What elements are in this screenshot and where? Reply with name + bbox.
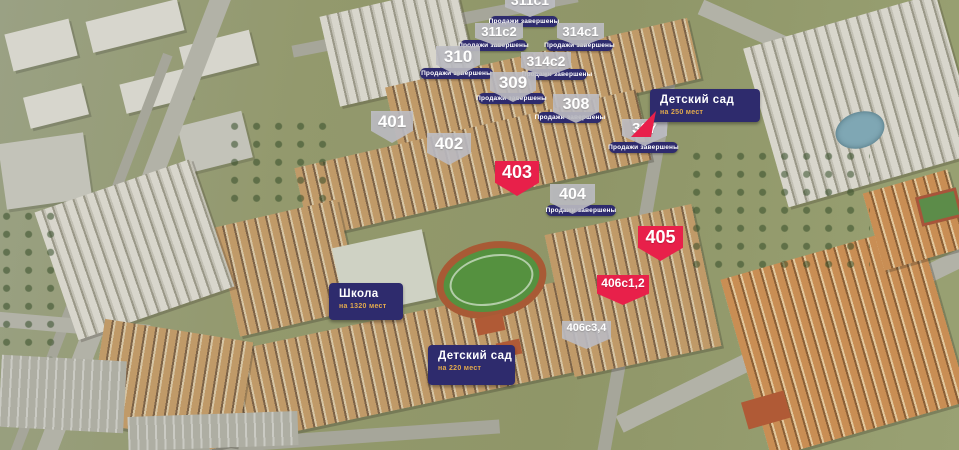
amenity-kindergarten-220: Детский сад на 220 мест <box>428 345 515 385</box>
amenity-capacity: на 1320 мест <box>339 303 393 310</box>
amenity-label-layer: Детский сад на 250 мест Школа на 1320 ме… <box>0 0 959 450</box>
amenity-capacity: на 250 мест <box>660 109 750 116</box>
masterplan-map: Продажи завершеныПродажи завершеныПродаж… <box>0 0 959 450</box>
amenity-title: Детский сад <box>660 94 750 106</box>
amenity-kindergarten-250: Детский сад на 250 мест <box>650 89 760 122</box>
amenity-school-1320: Школа на 1320 мест <box>329 283 403 320</box>
amenity-title: Школа <box>339 288 393 300</box>
pin-tail <box>631 111 656 137</box>
amenity-capacity: на 220 мест <box>438 365 505 372</box>
amenity-title: Детский сад <box>438 350 505 362</box>
